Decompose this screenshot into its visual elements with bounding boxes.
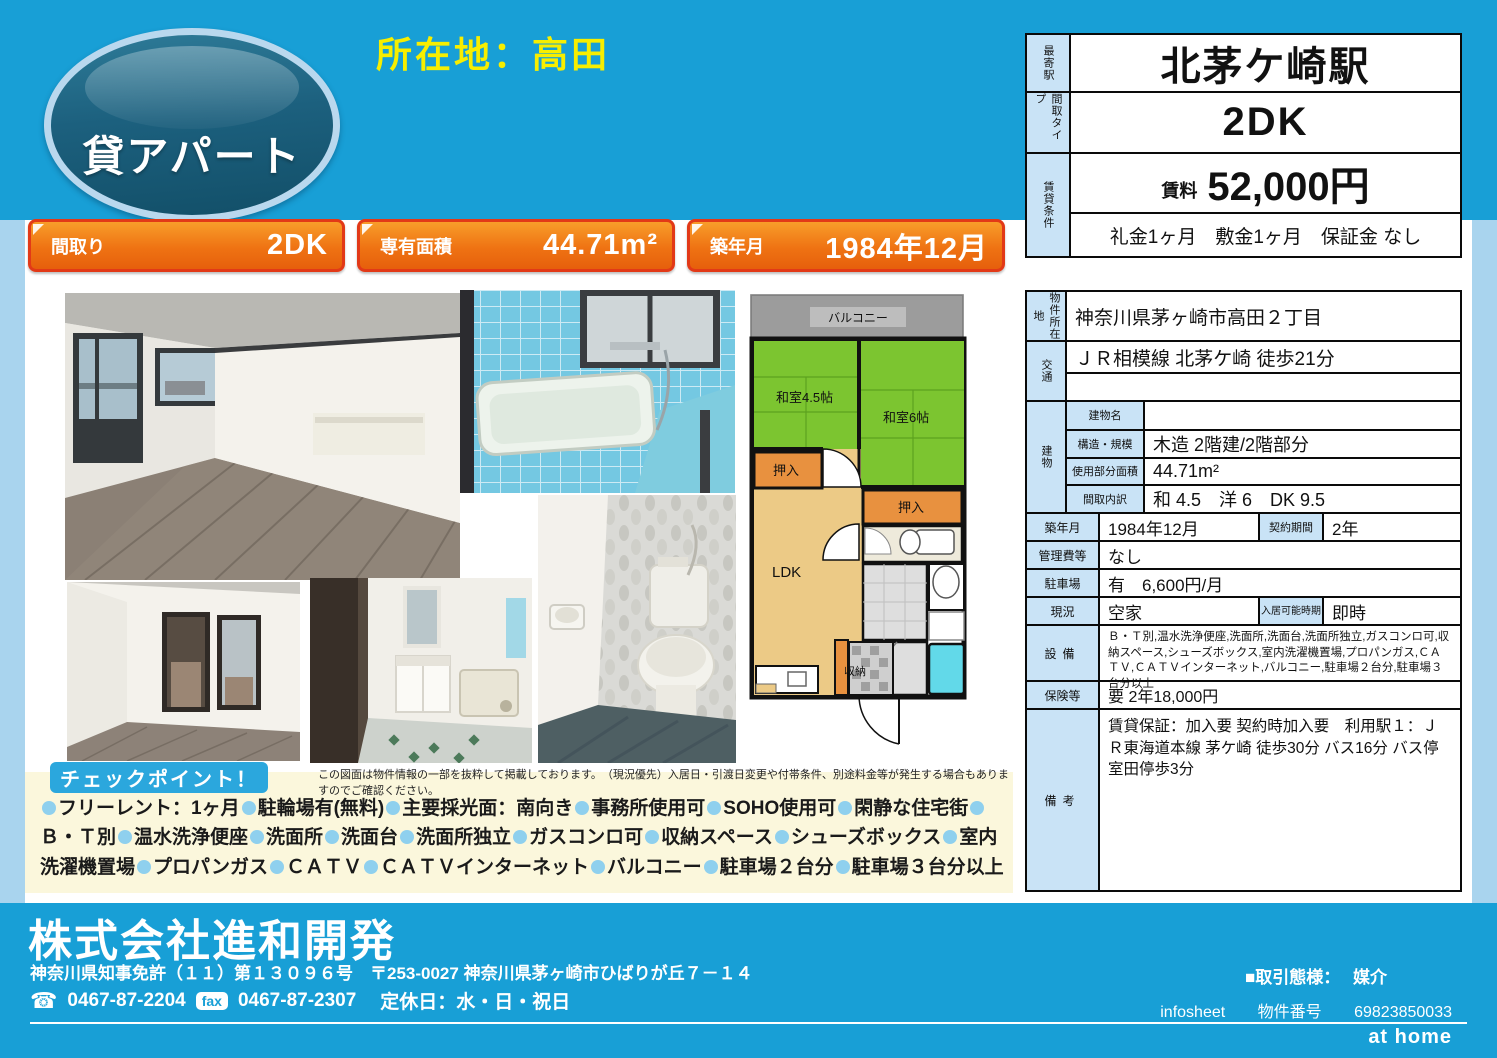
nearest-station-value: 北茅ケ崎駅 — [1071, 35, 1460, 93]
transport-value: ＪＲ相模線 北茅ケ崎 徒歩21分 — [1067, 342, 1460, 374]
photo-living-room-image — [65, 293, 460, 580]
badge-gloss — [85, 46, 299, 129]
fp-balcony-label: バルコニー — [828, 311, 888, 325]
location-value: 神奈川県茅ヶ崎市高田２丁目 — [1067, 292, 1460, 340]
checkpoint-item: 主要採光面：南向き — [384, 798, 573, 819]
row-built: 築年月 1984年12月 契約期間 2年 — [1027, 512, 1460, 540]
checkpoint-item: 洗面所独立 — [398, 827, 511, 848]
photo-toilet-image — [538, 495, 736, 763]
checkpoint-item: 駐輪場有(無料) — [240, 798, 385, 819]
photo-washroom-image — [310, 578, 532, 763]
built-value: 1984年12月 — [1100, 514, 1258, 540]
footer-divider — [30, 1022, 1467, 1024]
banner-built-value: 1984年12月 — [825, 225, 988, 267]
checkpoint-dot-icon — [943, 830, 957, 844]
license-text: 神奈川県知事免許（１１）第１３０９６号 〒253-0027 神奈川県茅ヶ崎市ひば… — [30, 959, 753, 984]
row-location: 物件所在地 神奈川県茅ヶ崎市高田２丁目 — [1027, 292, 1460, 340]
banner-layout-value: 2DK — [267, 229, 328, 262]
insurance-value: 要 2年18,000円 — [1100, 682, 1460, 708]
deal-type-value: 媒介 — [1353, 968, 1387, 987]
checkpoint-item: ＣＡＴＶインターネット — [362, 857, 589, 878]
row-transport: 交通 ＪＲ相模線 北茅ケ崎 徒歩21分 — [1027, 340, 1460, 400]
structure-row: 構造・規模 木造 2階建/2階部分 — [1067, 429, 1460, 457]
banner-built-label: 築年月 — [710, 233, 764, 259]
transport-label: 交通 — [1027, 342, 1067, 400]
checkpoint-item: ガスコンロ可 — [511, 827, 643, 848]
checkpoint-item: SOHO使用可 — [705, 798, 836, 819]
station-summary-table: 最寄駅 北茅ケ崎駅 間取タイプ 2DK 賃貸条件 賃料 52,000円 礼金1ヶ… — [1025, 33, 1462, 258]
rental-type-badge: 貸アパート — [44, 28, 340, 222]
layout-type-value: 2DK — [1071, 93, 1460, 154]
floor-plan: バルコニー 押入 押入 — [748, 292, 972, 764]
checkpoint-dot-icon — [400, 830, 414, 844]
move-in-label: 入居可能時期 — [1258, 598, 1324, 624]
banner-built: 築年月 1984年12月 — [687, 219, 1005, 272]
contact-line: ☎ 0467-87-2204 fax 0467-87-2307 定休日：水・日・… — [30, 987, 570, 1014]
structure-value: 木造 2階建/2階部分 — [1145, 431, 1460, 457]
built-label: 築年月 — [1027, 514, 1100, 540]
checkpoint-dot-icon — [575, 801, 589, 815]
checkpoint-dot-icon — [137, 860, 151, 874]
photo-bedroom-image — [67, 582, 300, 761]
row-insurance: 保険等 要 2年18,000円 — [1027, 680, 1460, 708]
banner-layout-label: 間取り — [51, 233, 105, 259]
checkpoint-item: フリーレント：1ヶ月 — [40, 798, 240, 819]
fax-icon: fax — [196, 992, 228, 1010]
row-status: 現況 空家 入居可能時期 即時 — [1027, 596, 1460, 624]
fax-number: 0467-87-2307 — [238, 990, 356, 1012]
checkpoint-dot-icon — [775, 830, 789, 844]
badge-label: 貸アパート — [51, 123, 333, 184]
checkpoint-dot-icon — [118, 830, 132, 844]
fp-ldk-label: LDK — [772, 564, 801, 581]
layout-breakdown-row: 間取内訳 和 4.5 洋 6 DK 9.5 — [1067, 484, 1460, 512]
phone-icon: ☎ — [30, 988, 57, 1014]
management-label: 管理費等 — [1027, 542, 1100, 568]
contract-period-value: 2年 — [1324, 514, 1460, 540]
checkpoint-item: 駐車場３台分以上 — [834, 857, 1004, 878]
parking-value: 有 6,600円/月 — [1100, 570, 1460, 596]
checkpoint-dot-icon — [42, 801, 56, 815]
checkpoint-dot-icon — [270, 860, 284, 874]
checkpoint-dot-icon — [250, 830, 264, 844]
checkpoint-item: ＣＡＴＶ — [268, 857, 362, 878]
remarks-value: 賃貸保証：加入要 契約時加入要 利用駅１：ＪＲ東海道本線 茅ケ崎 徒歩30分 バ… — [1100, 710, 1460, 890]
photo-toilet — [538, 495, 736, 763]
photo-bathroom-image — [460, 290, 735, 493]
area-value: 44.71m² — [1145, 459, 1460, 484]
left-side-strip — [0, 220, 25, 903]
checkpoint-button: チェックポイント！ — [50, 762, 268, 793]
checkpoint-dot-icon — [838, 801, 852, 815]
flyer-page: 貸アパート 所在地：高田 最寄駅 北茅ケ崎駅 間取タイプ 2DK 賃貸条件 賃料… — [0, 0, 1497, 1058]
right-side-strip — [1472, 220, 1497, 903]
fp-closet-right-label: 押入 — [898, 500, 924, 515]
rent-value: 52,000円 — [1207, 154, 1369, 212]
checkpoint-dot-icon — [591, 860, 605, 874]
checkpoint-item: 洗面台 — [323, 827, 398, 848]
building-name-label: 建物名 — [1067, 402, 1145, 429]
banner-area-label: 専有面積 — [380, 233, 452, 259]
layout-breakdown-label: 間取内訳 — [1067, 486, 1145, 512]
checkpoint-dot-icon — [386, 801, 400, 815]
area-row: 使用部分面積 44.71m² — [1067, 457, 1460, 484]
checkpoint-list: フリーレント：1ヶ月駐輪場有(無料)主要採光面：南向き事務所使用可SOHO使用可… — [40, 794, 1008, 882]
row-building: 建物 建物名 構造・規模 木造 2階建/2階部分 使用部分面積 44.71m² … — [1027, 400, 1460, 512]
checkpoint-item: プロパンガス — [135, 857, 268, 878]
fp-storage-label: 収納 — [844, 665, 866, 678]
checkpoint-dot-icon — [704, 860, 718, 874]
equipment-value: Ｂ・Ｔ別,温水洗浄便座,洗面所,洗面台,洗面所独立,ガスコンロ可,収納スペース,… — [1100, 626, 1460, 680]
checkpoint-item: 閑静な住宅街 — [836, 798, 968, 819]
checkpoint-dot-icon — [513, 830, 527, 844]
checkpoint-dot-icon — [836, 860, 850, 874]
checkpoint-item: 洗面所 — [248, 827, 323, 848]
building-name-row: 建物名 — [1067, 402, 1460, 429]
row-management: 管理費等 なし — [1027, 540, 1460, 568]
checkpoint-dot-icon — [707, 801, 721, 815]
management-value: なし — [1100, 542, 1460, 568]
infosheet-line: infosheet 物件番号 69823850033 — [1160, 998, 1452, 1022]
rent-label: 賃料 — [1161, 177, 1197, 203]
location-label: 物件所在地 — [1027, 292, 1067, 340]
checkpoint-item: 事務所使用可 — [573, 798, 705, 819]
rent-terms-label: 賃貸条件 — [1027, 154, 1071, 256]
property-details-table: 物件所在地 神奈川県茅ヶ崎市高田２丁目 交通 ＪＲ相模線 北茅ケ崎 徒歩21分 … — [1025, 290, 1462, 892]
row-equipment: 設備 Ｂ・Ｔ別,温水洗浄便座,洗面所,洗面台,洗面所独立,ガスコンロ可,収納スペ… — [1027, 624, 1460, 680]
checkpoint-dot-icon — [364, 860, 378, 874]
checkpoint-dot-icon — [325, 830, 339, 844]
fp-tatami45-label: 和室4.5帖 — [776, 390, 833, 405]
contract-period-label: 契約期間 — [1258, 514, 1324, 540]
page-title: 所在地：高田 — [376, 26, 610, 78]
checkpoint-dot-icon — [970, 801, 984, 815]
photo-bathroom — [460, 290, 735, 493]
move-in-value: 即時 — [1324, 598, 1460, 624]
parking-label: 駐車場 — [1027, 570, 1100, 596]
athome-logo: at home — [1368, 1026, 1452, 1049]
phone-number: 0467-87-2204 — [67, 990, 185, 1012]
layout-breakdown-value: 和 4.5 洋 6 DK 9.5 — [1145, 486, 1460, 512]
footer: 株式会社進和開発 神奈川県知事免許（１１）第１３０９６号 〒253-0027 神… — [0, 903, 1497, 1058]
checkpoint-item: 駐車場２台分 — [702, 857, 834, 878]
property-number-label: 物件番号 — [1258, 1004, 1322, 1021]
remarks-label: 備考 — [1027, 710, 1100, 890]
checkpoint-item: バルコニー — [589, 857, 702, 878]
deposit-terms: 礼金1ヶ月 敷金1ヶ月 保証金 なし — [1071, 214, 1460, 256]
structure-label: 構造・規模 — [1067, 431, 1145, 457]
holiday-text: 定休日：水・日・祝日 — [380, 987, 570, 1014]
rent-row: 賃料 52,000円 — [1071, 154, 1460, 214]
row-parking: 駐車場 有 6,600円/月 — [1027, 568, 1460, 596]
building-name-value — [1145, 402, 1460, 429]
nearest-station-label: 最寄駅 — [1027, 35, 1071, 93]
photo-bedroom — [67, 582, 300, 761]
floor-plan-drawing: バルコニー 押入 押入 — [748, 292, 972, 764]
fp-closet-left-label: 押入 — [773, 463, 799, 478]
checkpoint-dot-icon — [242, 801, 256, 815]
banner-layout: 間取り 2DK — [28, 219, 345, 272]
deal-type-label: ■取引態様： — [1245, 968, 1340, 987]
transport-value2 — [1067, 374, 1460, 400]
checkpoint-item: 温水洗浄便座 — [116, 827, 248, 848]
layout-type-label: 間取タイプ — [1027, 93, 1071, 154]
row-remarks: 備考 賃貸保証：加入要 契約時加入要 利用駅１：ＪＲ東海道本線 茅ケ崎 徒歩30… — [1027, 708, 1460, 890]
infosheet-label: infosheet — [1160, 1004, 1225, 1021]
banner-area-value: 44.71m² — [543, 229, 658, 262]
status-value: 空家 — [1100, 598, 1258, 624]
checkpoint-item: シューズボックス — [773, 827, 941, 848]
banner-area: 専有面積 44.71m² — [357, 219, 675, 272]
photo-washroom — [310, 578, 532, 763]
checkpoint-dot-icon — [645, 830, 659, 844]
building-label: 建物 — [1027, 402, 1067, 512]
insurance-label: 保険等 — [1027, 682, 1100, 708]
deal-type-line: ■取引態様： 媒介 — [1245, 963, 1387, 988]
property-number: 69823850033 — [1354, 1004, 1452, 1021]
fp-tatami6-label: 和室6帖 — [883, 410, 929, 425]
photo-living-room — [65, 293, 460, 580]
checkpoint-item: 収納スペース — [643, 827, 773, 848]
status-label: 現況 — [1027, 598, 1100, 624]
area-label: 使用部分面積 — [1067, 459, 1145, 484]
equipment-label: 設備 — [1027, 626, 1100, 680]
